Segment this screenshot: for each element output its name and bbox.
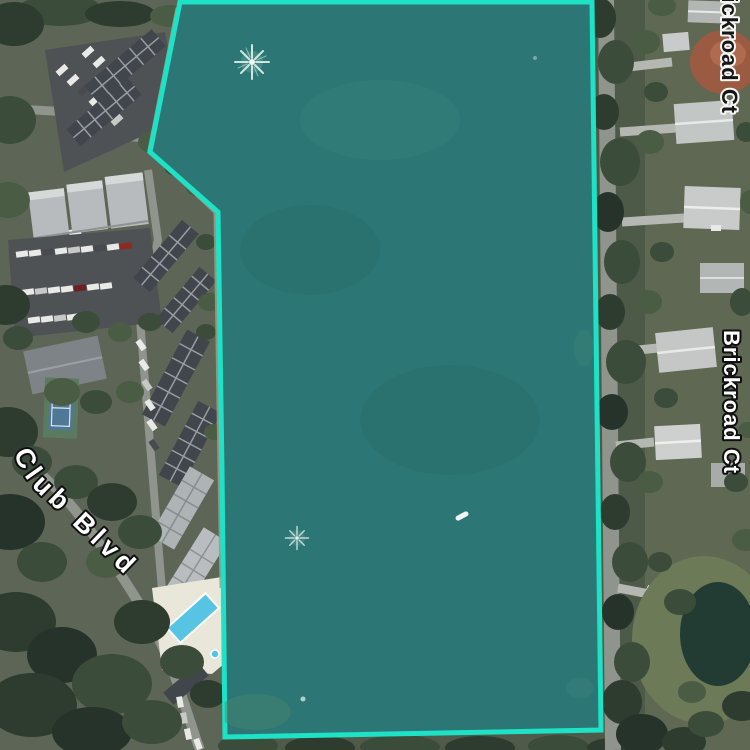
lake-speck-2 <box>533 56 537 60</box>
road-label-brickroad-ct-top: Brickroad Ct <box>717 0 742 114</box>
road-label-brickroad-ct-mid: Brickroad Ct <box>719 330 744 474</box>
lake-speck <box>301 697 306 702</box>
algae-patch <box>219 694 291 730</box>
satellite-map[interactable]: Brickroad Ct Brickroad Ct Club Blvd <box>0 0 750 750</box>
hot-tub <box>211 650 219 658</box>
